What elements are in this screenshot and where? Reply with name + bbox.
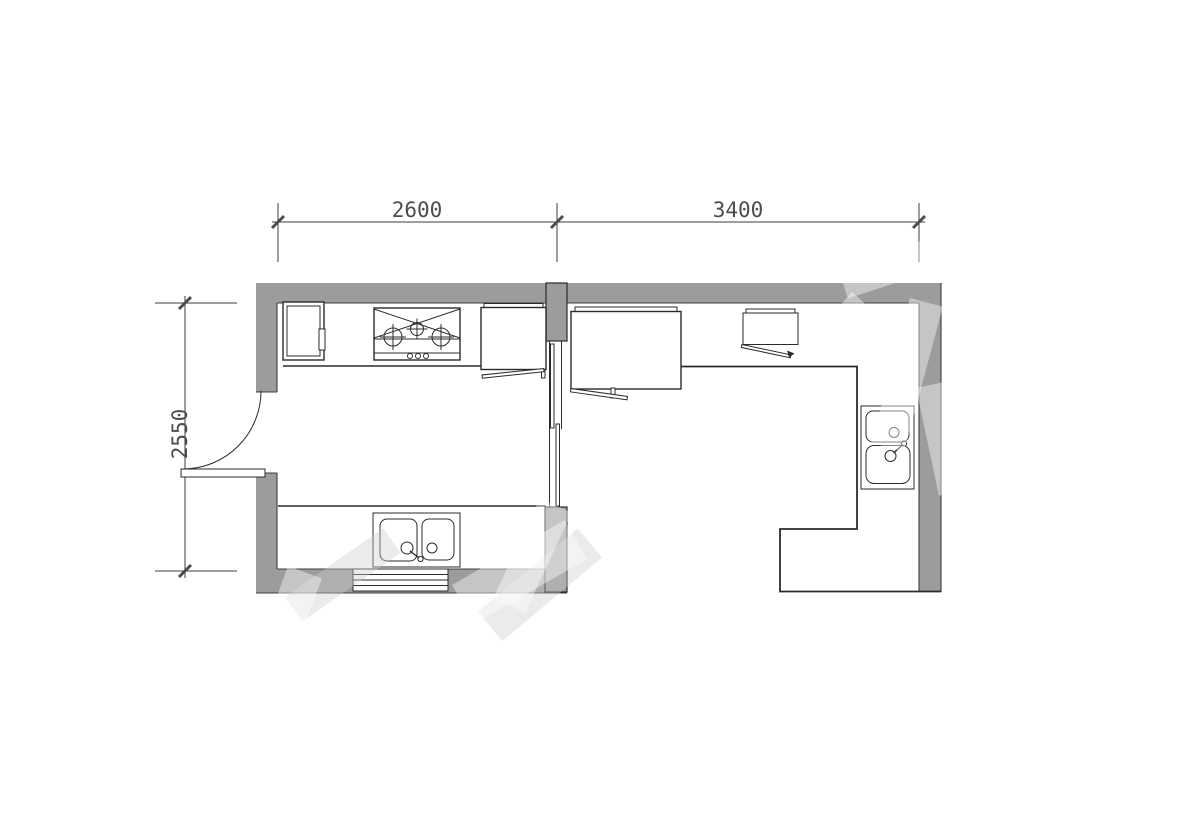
dimension-label-2600: 2600	[392, 198, 443, 222]
cabinet-inner	[287, 306, 320, 356]
wall-top	[256, 283, 941, 303]
sliding-door-panel-a	[551, 344, 555, 428]
door-swing-arc	[183, 391, 261, 469]
tall-cabinet	[481, 304, 546, 379]
gas-stove-icon	[374, 308, 460, 360]
kitchen-left-room	[278, 302, 546, 591]
entry-door	[181, 391, 265, 477]
sink-basin-right	[422, 519, 454, 560]
dimension-label-3400: 3400	[713, 198, 764, 222]
wall-left-upper	[256, 283, 277, 392]
fridge-open-door	[571, 389, 628, 400]
floor-plan-drawing: 2600 3400 2550	[0, 0, 1198, 831]
tall-cabinet-body	[481, 308, 546, 370]
dimension-left: 2550	[155, 296, 237, 578]
small-cabinet-open-door	[741, 345, 791, 358]
dimension-label-2550: 2550	[168, 409, 192, 460]
small-wall-cabinet	[741, 309, 798, 358]
fridge-body	[571, 312, 681, 390]
dimension-top: 2600 3400	[272, 198, 925, 262]
small-cabinet-body	[743, 313, 798, 345]
refrigerator	[571, 307, 681, 400]
cabinet-handle	[319, 329, 325, 350]
wall-cabinet	[283, 302, 325, 360]
sliding-door	[550, 341, 562, 507]
sliding-door-panel-b	[556, 424, 560, 506]
door-leaf	[181, 469, 265, 477]
dimension-extension-lines-top	[278, 203, 919, 262]
small-cabinet-front-strip	[746, 309, 795, 313]
wall-column-middle-top	[546, 283, 567, 341]
floor-plan-page: 2600 3400 2550	[0, 0, 1198, 831]
